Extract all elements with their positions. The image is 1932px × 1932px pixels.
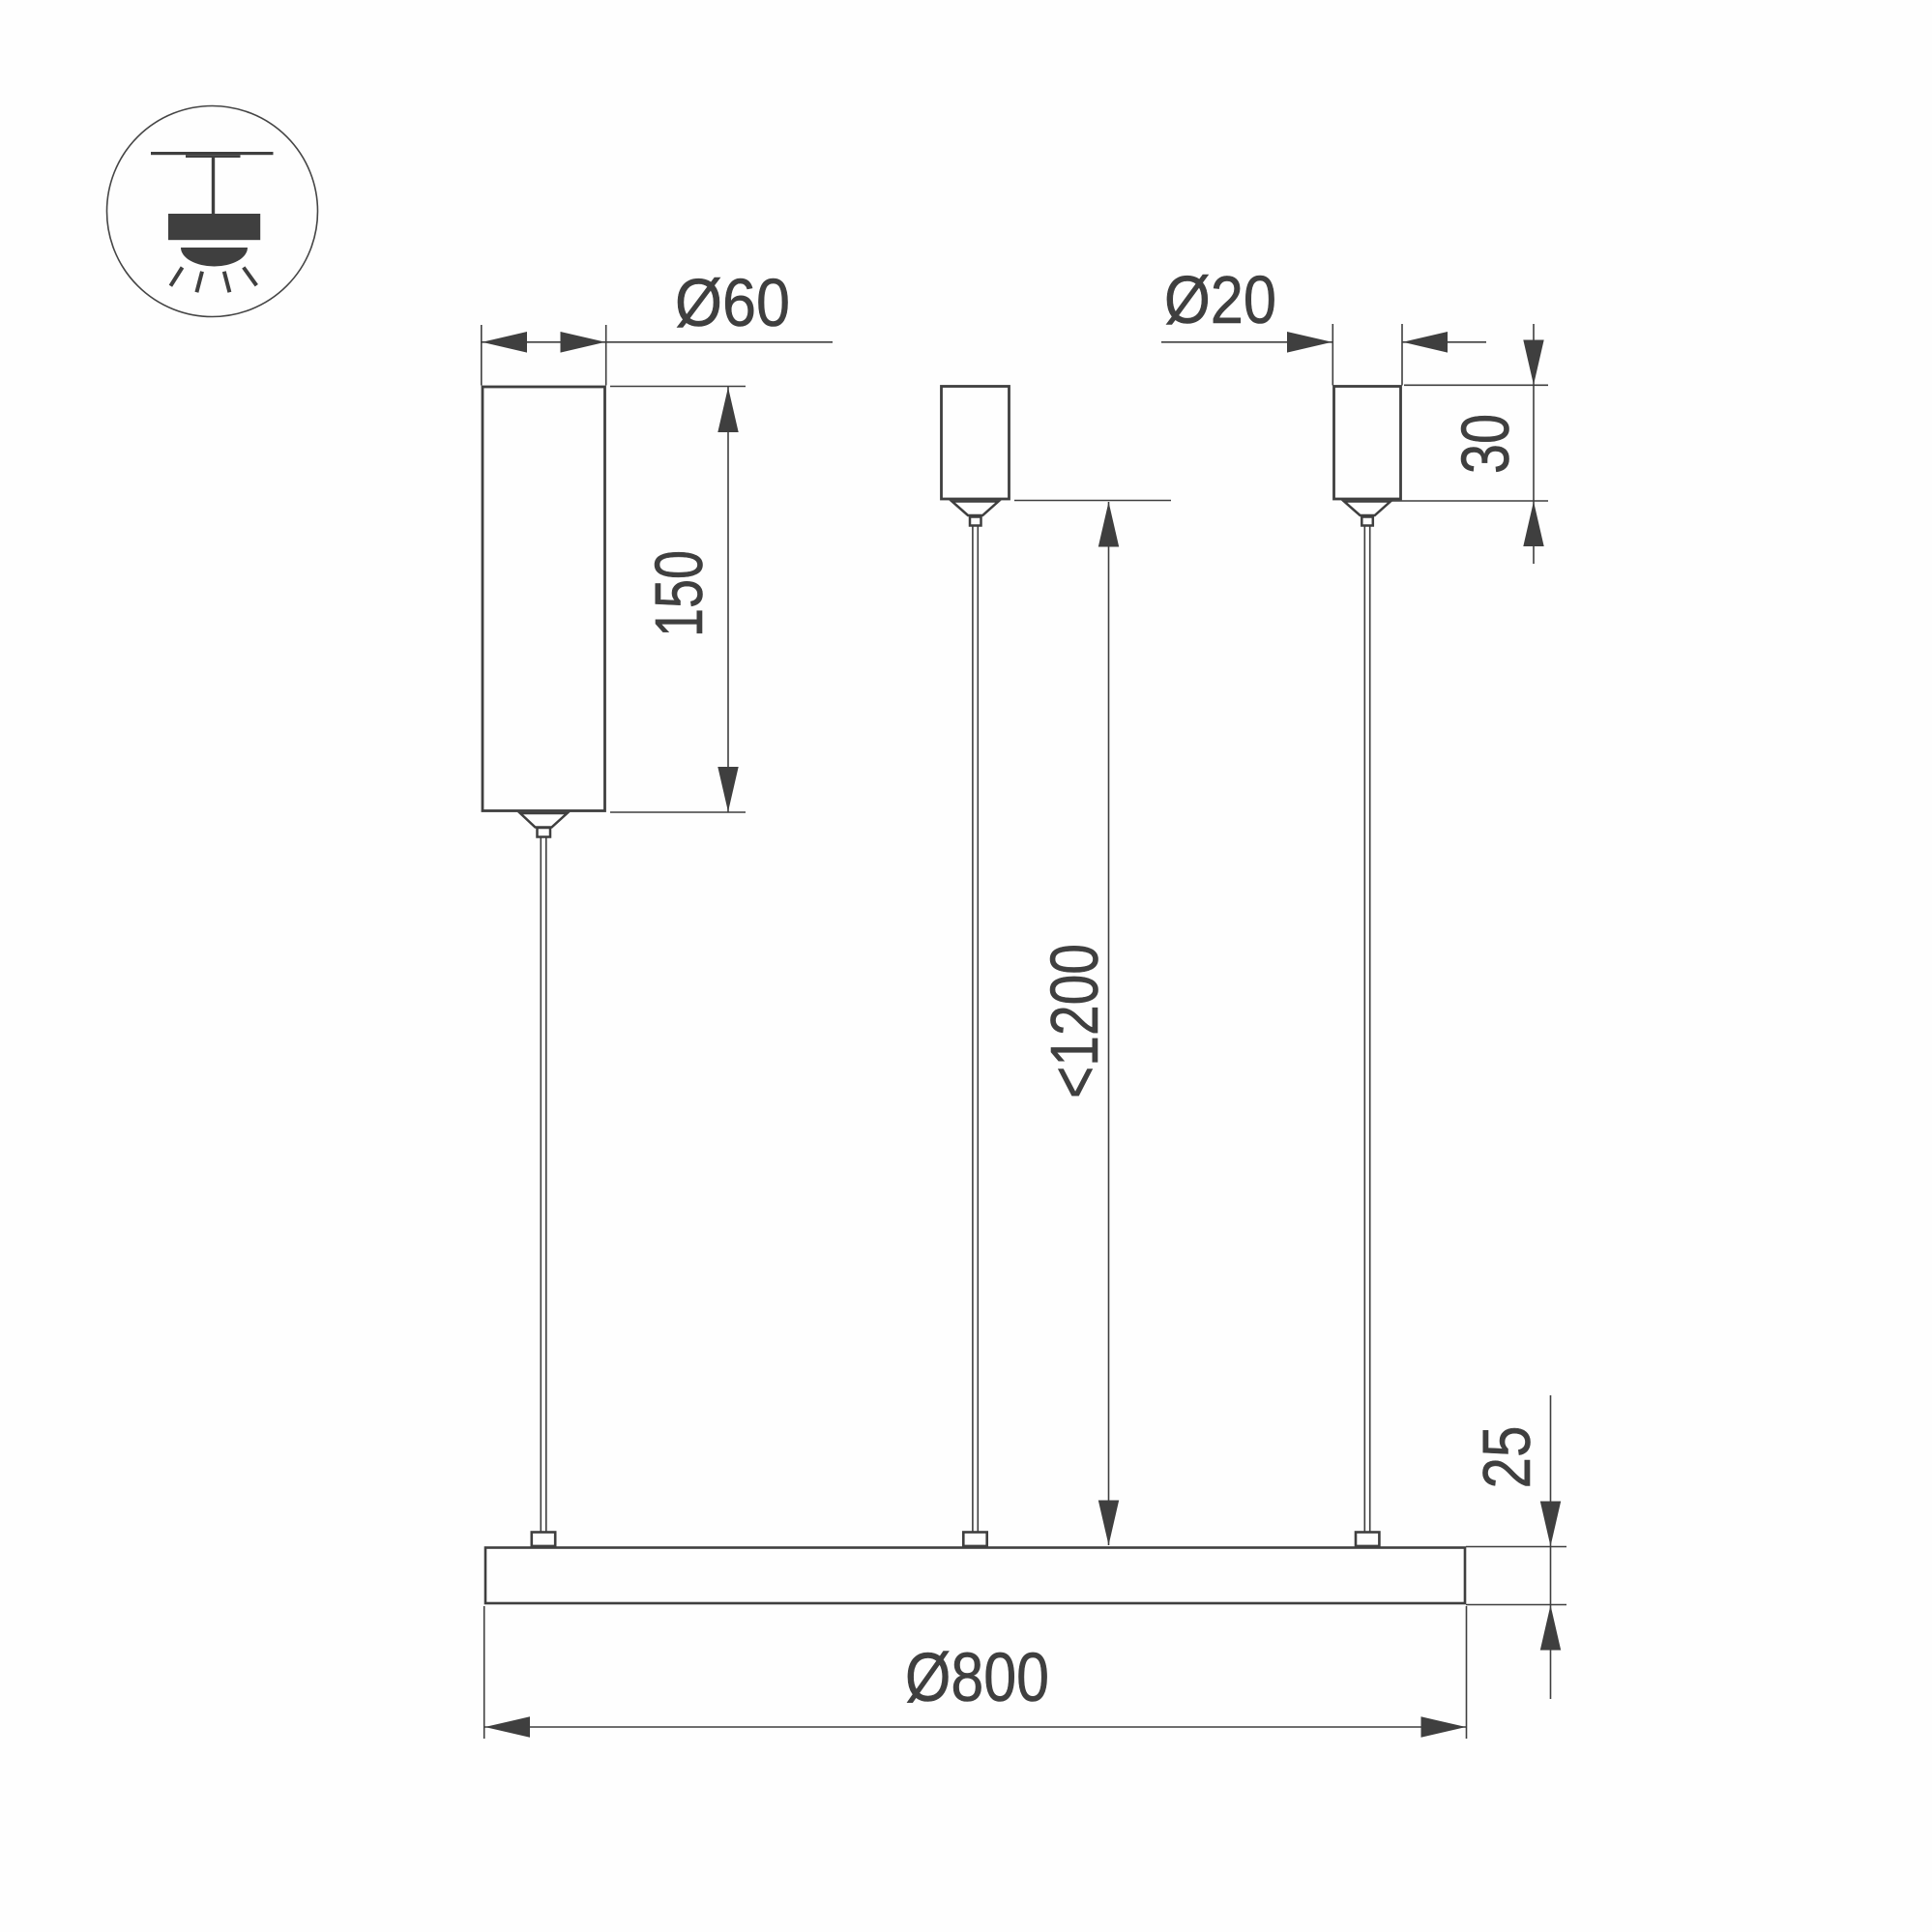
svg-text:30: 30 [1448, 414, 1523, 474]
svg-text:Ø20: Ø20 [1164, 262, 1276, 337]
svg-text:Ø60: Ø60 [675, 265, 790, 340]
svg-text:<1200: <1200 [1037, 944, 1112, 1098]
svg-text:25: 25 [1469, 1426, 1544, 1489]
svg-text:Ø800: Ø800 [905, 1640, 1049, 1716]
svg-text:150: 150 [641, 550, 717, 637]
